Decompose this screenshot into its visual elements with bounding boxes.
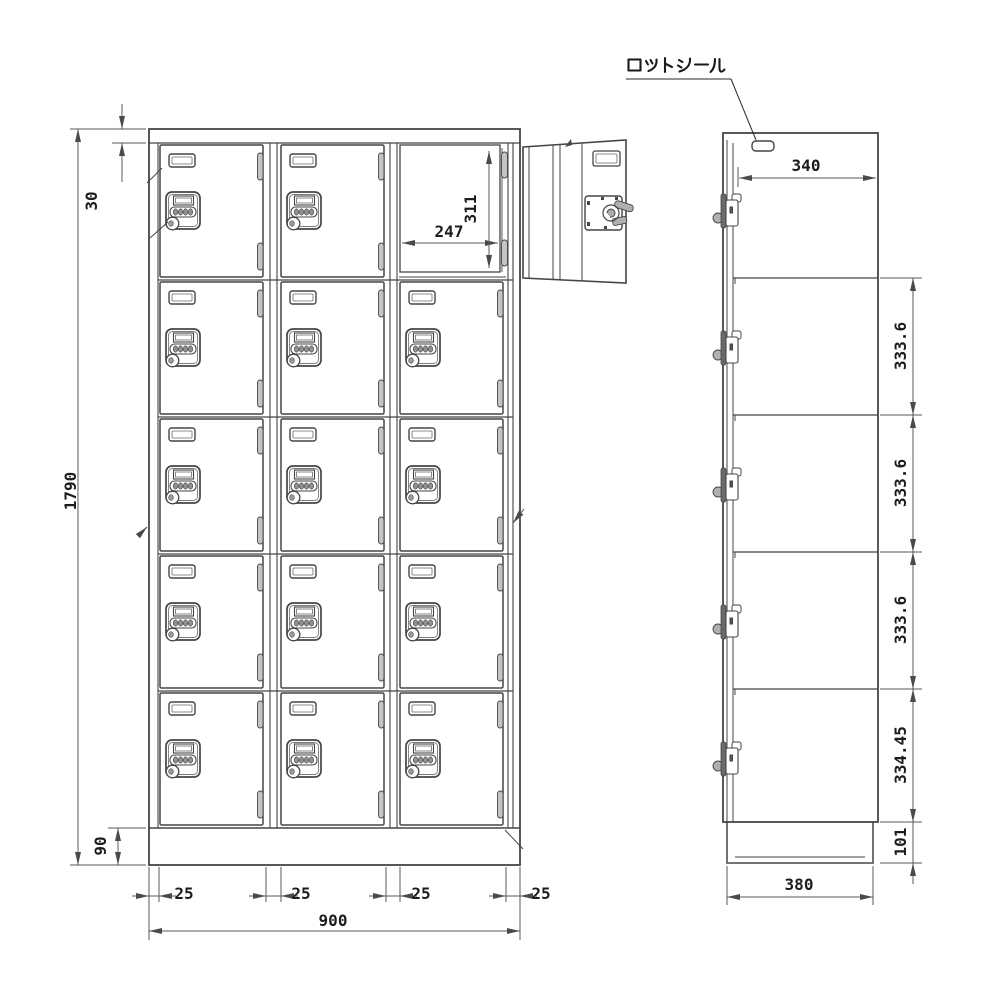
dim-top-frame-height: 30 <box>84 191 100 210</box>
dim-section-4: 334.45 <box>893 726 909 784</box>
locker-door <box>281 693 384 825</box>
dim-section-1: 333.6 <box>893 322 909 370</box>
dim-section-2: 333.6 <box>893 459 909 507</box>
dim-gap-4: 25 <box>531 886 550 902</box>
dim-bottom-depth: 380 <box>785 877 814 893</box>
dim-gap-2: 25 <box>291 886 310 902</box>
side-view <box>713 133 878 863</box>
locker-door <box>400 282 503 414</box>
dim-top-depth: 340 <box>792 158 821 174</box>
locker-technical-drawing: 30 1790 90 25 25 25 25 900 247 311 340 3… <box>0 0 1000 1000</box>
open-compartment <box>399 145 508 277</box>
locker-door <box>281 282 384 414</box>
locker-door <box>400 693 503 825</box>
locker-door <box>160 693 263 825</box>
dim-gap-1: 25 <box>174 886 193 902</box>
locker-door <box>400 419 503 551</box>
locker-door <box>160 282 263 414</box>
lot-seal <box>752 141 774 151</box>
dim-overall-height: 1790 <box>63 472 79 511</box>
lot-seal-label <box>629 58 725 72</box>
front-view <box>138 129 634 865</box>
dim-gap-3: 25 <box>411 886 430 902</box>
locker-door <box>160 556 263 688</box>
drawing-linework <box>0 0 1000 1000</box>
locker-door <box>281 419 384 551</box>
dim-section-3: 333.6 <box>893 596 909 644</box>
locker-door <box>400 556 503 688</box>
dim-overall-width: 900 <box>319 913 348 929</box>
dim-opening-height: 311 <box>463 195 479 224</box>
locker-door <box>160 145 263 277</box>
locker-door <box>281 556 384 688</box>
open-door <box>523 139 634 283</box>
dim-base-height: 90 <box>93 836 109 855</box>
dim-opening-width: 247 <box>435 224 464 240</box>
dim-side-base-height: 101 <box>893 828 909 857</box>
locker-door <box>160 419 263 551</box>
locker-door <box>281 145 384 277</box>
